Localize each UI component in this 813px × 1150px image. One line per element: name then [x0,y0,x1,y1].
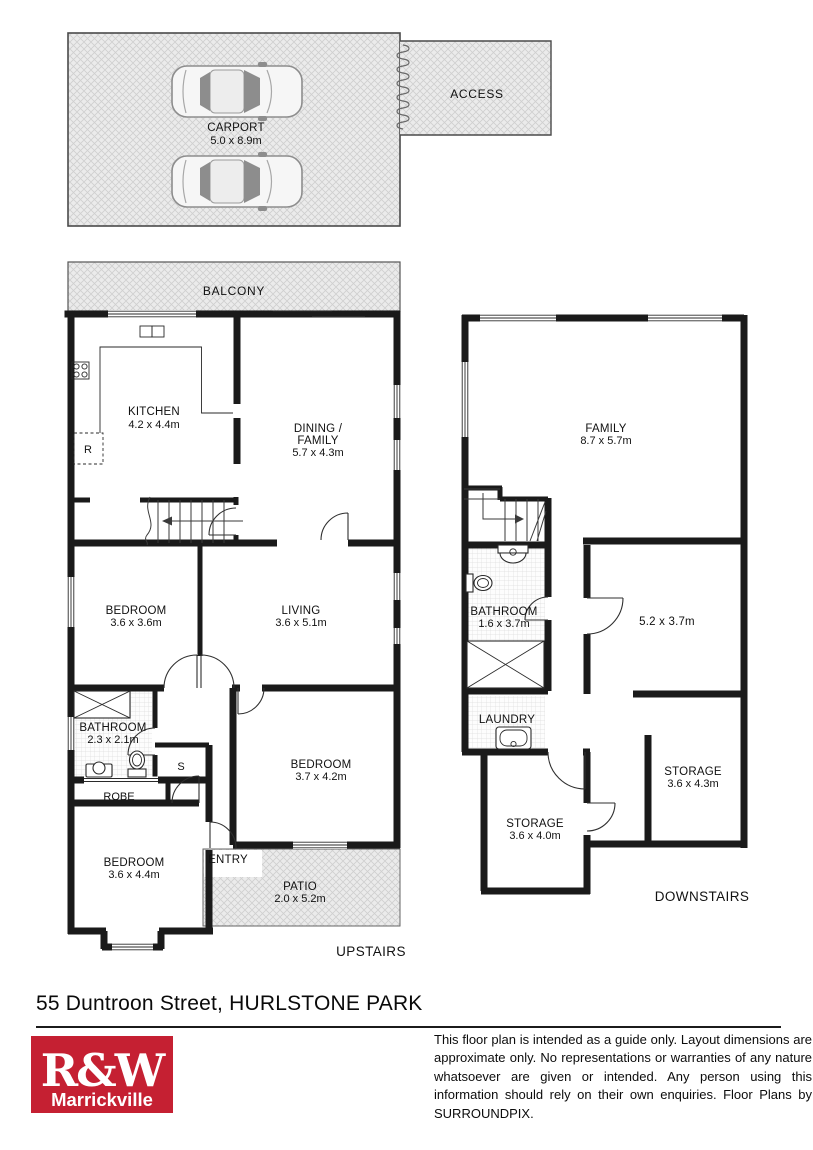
staircase-icon [146,497,243,545]
storage-left-label: STORAGE [506,818,564,830]
laundry-label: LAUNDRY [479,714,535,726]
bedroom-mid-dims: 3.7 x 4.2m [295,771,346,783]
agency-logo: R&W Marrickville [31,1036,173,1113]
property-address: 55 Duntroon Street, HURLSTONE PARK [36,992,423,1016]
downstairs-plan: FAMILY 8.7 x 5.7m BATHROOM 1.6 x 3.7m 5.… [461,314,749,904]
bedroom-mid-label: BEDROOM [291,759,352,771]
window-icon [461,314,722,437]
bedroom-rear-dims: 3.6 x 4.4m [108,869,159,881]
balcony-label: BALCONY [203,284,265,298]
kitchen-label: KITCHEN [128,406,180,418]
storage-right-dims: 3.6 x 4.3m [667,778,718,790]
bathroom-down-dims: 1.6 x 3.7m [478,618,529,630]
kitchen-counter [72,326,233,464]
logo-office-text: Marrickville [51,1089,153,1110]
living-dims: 3.6 x 5.1m [275,617,326,629]
dining-family-label: DINING / [294,423,343,435]
bathroom-up-dims: 2.3 x 2.1m [87,734,138,746]
bedroom-rear-label: BEDROOM [104,857,165,869]
upstairs-plan: KITCHEN 4.2 x 4.4m R DINING / FAMILY 5.7… [65,310,406,959]
bedroom-front-dims: 3.6 x 3.6m [110,617,161,629]
family-dims: 8.7 x 5.7m [580,435,631,447]
entry-label: ENTRY [208,854,248,866]
robe-label: ROBE [103,791,134,803]
dining-family-label2: FAMILY [297,435,338,447]
toilet-icon [466,574,473,592]
car-icon [172,62,302,121]
bathroom-down-label: BATHROOM [470,606,537,618]
dining-family-dims: 5.7 x 4.3m [292,447,343,459]
storage-right-label: STORAGE [664,766,722,778]
bedroom-front-label: BEDROOM [106,605,167,617]
living-label: LIVING [282,605,321,617]
carport-dims: 5.0 x 8.9m [210,135,261,147]
door-icon [128,508,348,848]
carport-area: CARPORT 5.0 x 8.9m ACCESS [68,33,551,226]
disclaimer-text: This floor plan is intended as a guide o… [434,1031,812,1123]
balcony-area: BALCONY [68,262,400,311]
divider-line [36,1026,781,1028]
carport-label: CARPORT [207,122,264,134]
downstairs-floor-label: DOWNSTAIRS [655,889,750,904]
patio-dims: 2.0 x 5.2m [274,893,325,905]
floor-plan-drawing: CARPORT 5.0 x 8.9m ACCESS BALCONY [0,0,813,985]
bathroom-up-label: BATHROOM [79,722,146,734]
hutch-icon [152,326,164,337]
access-label: ACCESS [450,87,504,101]
toilet-icon [128,769,146,777]
kitchen-dims: 4.2 x 4.4m [128,419,179,431]
cupboard-symbol: S [177,761,184,773]
rumpus-dims: 5.2 x 3.7m [639,616,695,628]
storage-left-dims: 3.6 x 4.0m [509,830,560,842]
family-label: FAMILY [585,423,626,435]
patio-label: PATIO [283,881,317,893]
floor-plan-page: CARPORT 5.0 x 8.9m ACCESS BALCONY [0,0,813,1150]
fridge-symbol: R [84,444,92,456]
upstairs-floor-label: UPSTAIRS [336,944,406,959]
car-icon [172,152,302,211]
hutch-icon [140,326,152,337]
